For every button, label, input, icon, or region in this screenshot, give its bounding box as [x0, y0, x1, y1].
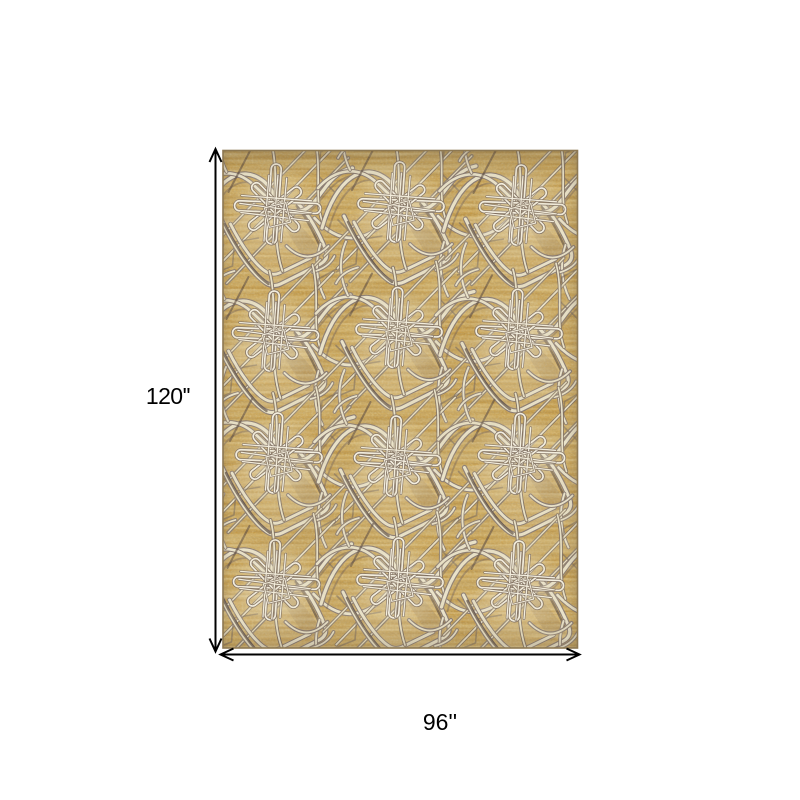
svg-text:96'': 96''	[423, 709, 457, 735]
svg-text:120'': 120''	[146, 383, 190, 409]
